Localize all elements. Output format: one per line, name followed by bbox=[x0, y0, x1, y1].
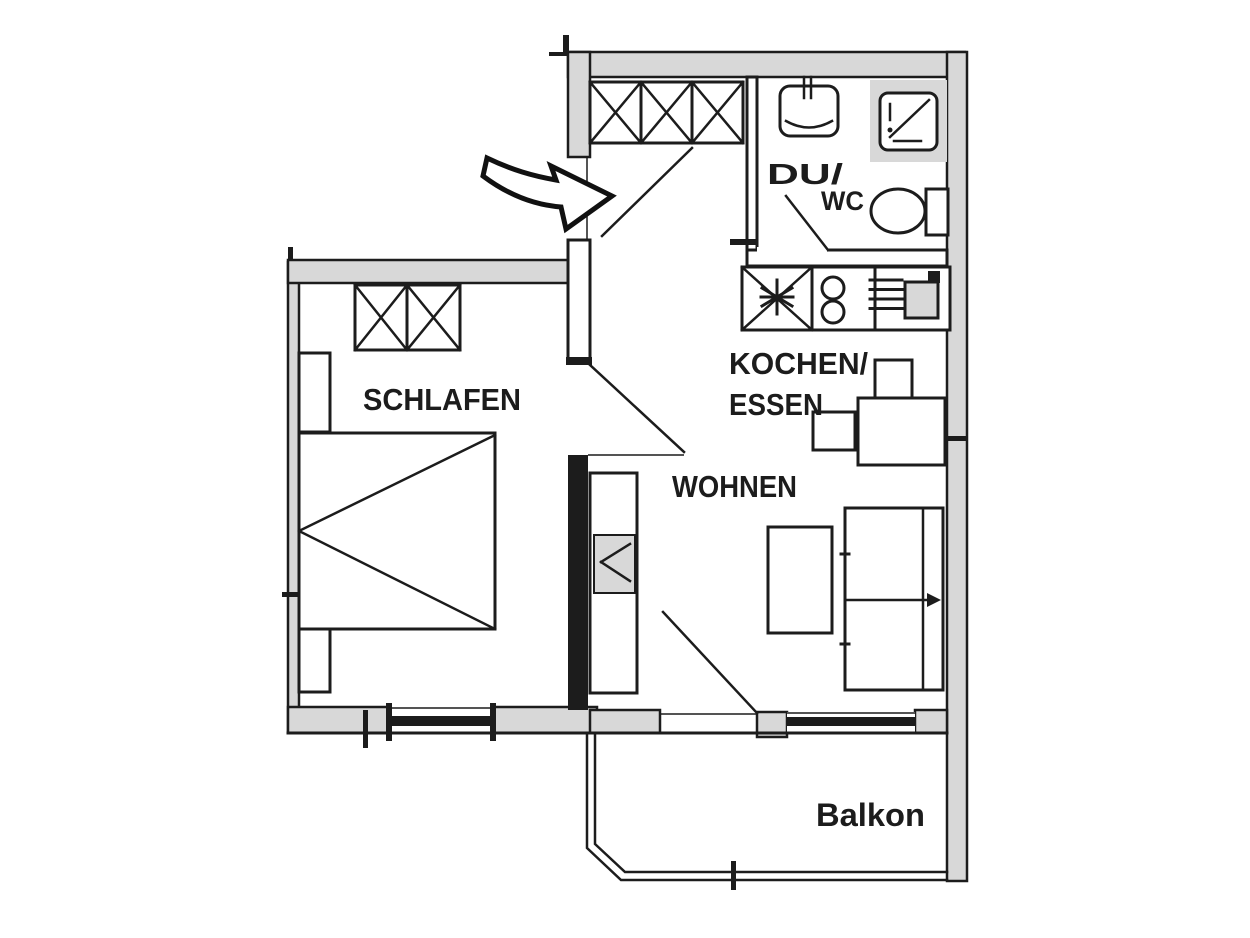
entrance-arrow-icon bbox=[483, 158, 612, 229]
dining-table-icon bbox=[858, 398, 945, 465]
floorplan-canvas: SCHLAFEN WOHNEN KOCHEN/ ESSEN DU/ WC Bal… bbox=[0, 0, 1250, 938]
tap-icon bbox=[928, 271, 940, 283]
bathroom-sink-icon bbox=[780, 77, 838, 136]
room-label-schlafen: SCHLAFEN bbox=[363, 382, 521, 417]
wall-schlafen-bottom-right bbox=[493, 707, 597, 733]
wall-wohnen-bottom-left bbox=[590, 710, 660, 733]
window-post bbox=[490, 703, 496, 741]
chair-icon bbox=[875, 360, 912, 398]
shower-icon bbox=[870, 80, 947, 162]
wall-tick bbox=[288, 247, 293, 261]
wall-bath-corner-cap bbox=[730, 239, 756, 245]
floorplan-drawing: SCHLAFEN WOHNEN KOCHEN/ ESSEN DU/ WC Bal… bbox=[0, 0, 1250, 938]
wall-entry-stub bbox=[568, 240, 590, 362]
room-label-wohnen: WOHNEN bbox=[672, 469, 797, 504]
wall-tick bbox=[563, 35, 569, 53]
toilet-icon bbox=[871, 189, 948, 235]
balcony-door-leaf bbox=[663, 612, 757, 713]
wall-top bbox=[568, 52, 965, 77]
wall-tick bbox=[549, 52, 569, 56]
wall-unit-icon bbox=[590, 473, 637, 693]
wall-schlafen-left bbox=[288, 262, 299, 733]
window-post bbox=[386, 703, 392, 741]
wall-wohnen-bottom-right bbox=[915, 710, 947, 733]
wall-bath-left bbox=[747, 77, 757, 250]
railing-tick bbox=[731, 861, 736, 890]
wall-right bbox=[947, 52, 967, 881]
wall-tick bbox=[363, 710, 368, 748]
bedroom-door-leaf bbox=[589, 364, 684, 452]
wall-schlafen-bottom-left bbox=[288, 707, 390, 733]
wall-hall-left bbox=[568, 52, 590, 157]
wall-schlafen-wohnen bbox=[568, 455, 588, 710]
sofa-icon bbox=[841, 508, 943, 690]
nightstand-icon bbox=[299, 353, 330, 432]
bath-door-opening bbox=[757, 247, 827, 256]
wall-tick bbox=[282, 592, 299, 597]
bedroom-wardrobe-icon bbox=[355, 285, 460, 350]
room-label-essen: ESSEN bbox=[729, 387, 823, 422]
coffee-table-icon bbox=[768, 527, 832, 633]
bed-icon bbox=[299, 433, 495, 629]
room-label-kochen: KOCHEN/ bbox=[729, 346, 868, 381]
wall-tick bbox=[945, 436, 967, 441]
wall-schlafen-top bbox=[288, 260, 590, 283]
entrance-door-leaf bbox=[602, 148, 692, 236]
room-label-balkon: Balkon bbox=[816, 797, 925, 833]
room-label-wc: WC bbox=[821, 186, 864, 216]
hall-wardrobe-icon bbox=[590, 82, 743, 143]
nightstand-icon bbox=[299, 628, 330, 692]
